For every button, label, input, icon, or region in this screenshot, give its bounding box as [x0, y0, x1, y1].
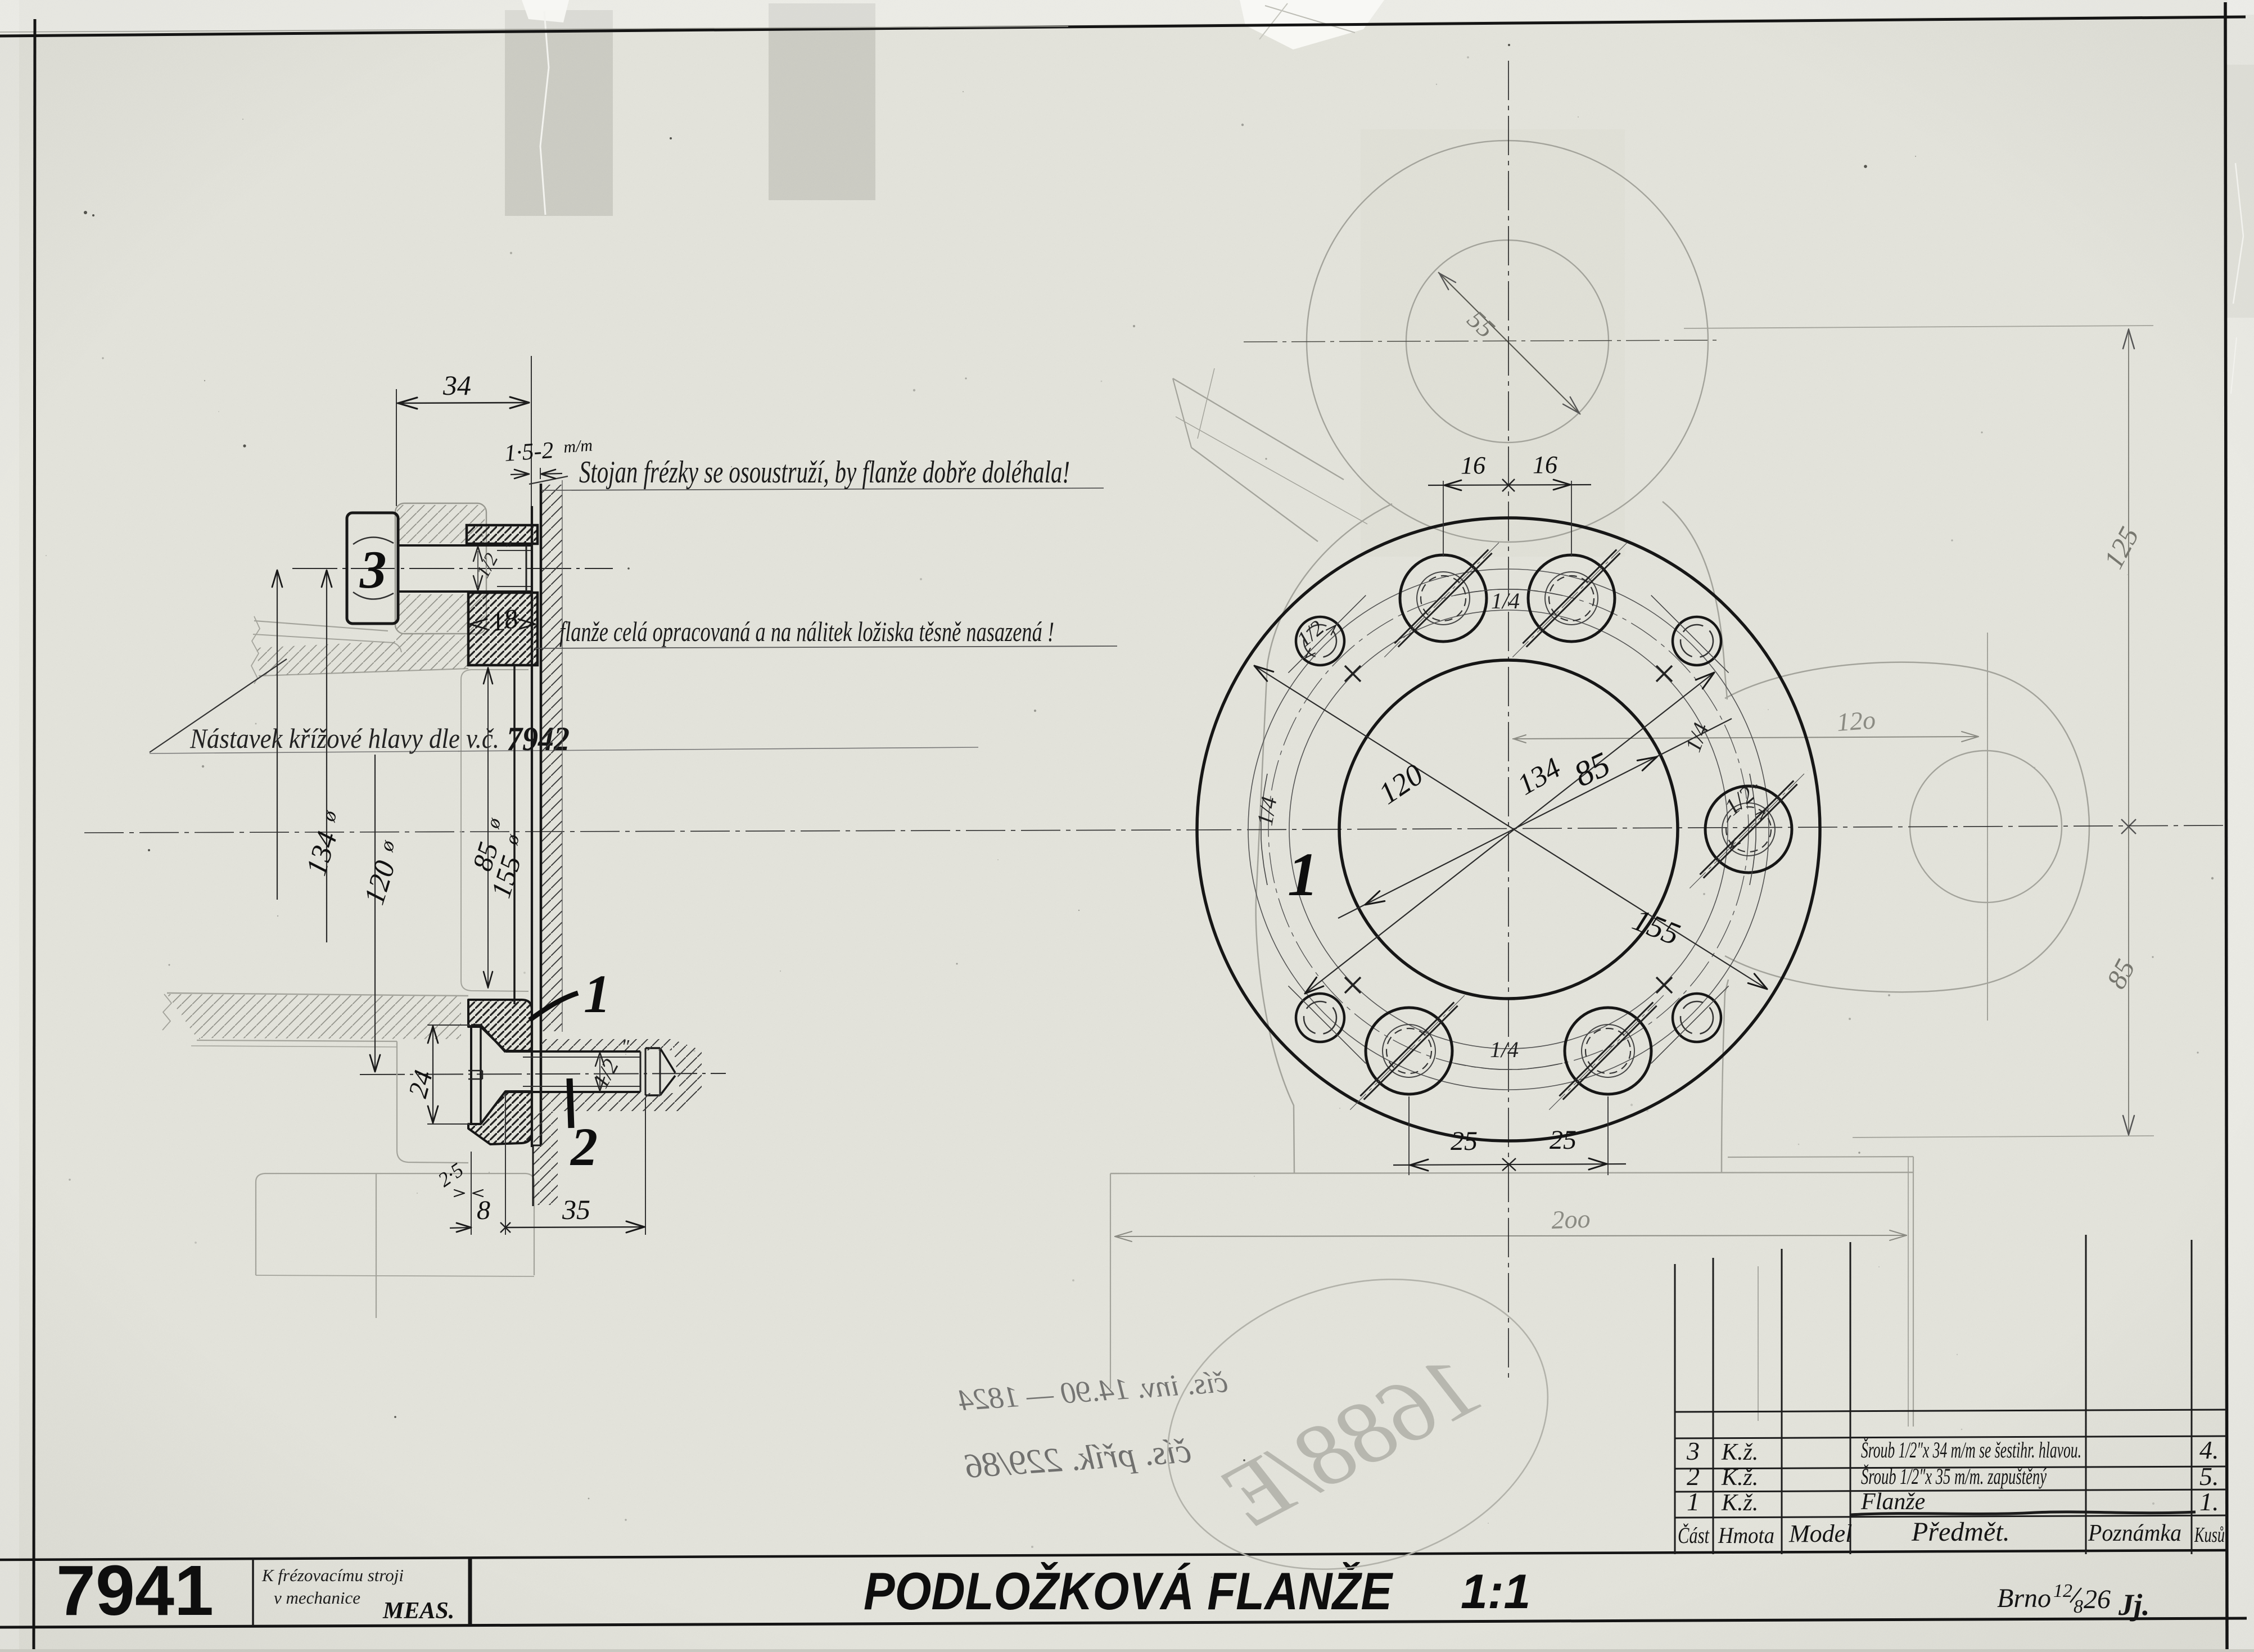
svg-text:K.ž.: K.ž.: [1721, 1439, 1758, 1465]
svg-text:m/m: m/m: [563, 436, 593, 457]
svg-text:2: 2: [570, 1117, 598, 1177]
svg-text:1/4: 1/4: [1491, 588, 1520, 613]
svg-text:25: 25: [1451, 1126, 1478, 1156]
svg-text:Flanže: Flanže: [1860, 1489, 1925, 1515]
svg-text:″: ″: [504, 539, 512, 558]
svg-text:18: 18: [489, 603, 520, 638]
svg-text:1·5-2: 1·5-2: [503, 437, 554, 467]
svg-text:1: 1: [584, 964, 611, 1024]
svg-text:4.: 4.: [2199, 1436, 2219, 1464]
svg-text:MEAS.: MEAS.: [382, 1598, 454, 1624]
svg-text:Část: Část: [1678, 1523, 1710, 1548]
svg-text:Předmět.: Předmět.: [1911, 1517, 2010, 1547]
svg-text:5.: 5.: [2199, 1462, 2219, 1491]
svg-text:Model: Model: [1788, 1520, 1852, 1547]
svg-text:K.ž.: K.ž.: [1721, 1465, 1758, 1491]
svg-text:7941: 7941: [56, 1551, 214, 1630]
svg-text:2: 2: [1687, 1462, 1700, 1491]
svg-text:12o: 12o: [1836, 705, 1876, 737]
svg-text:8: 8: [2074, 1596, 2083, 1617]
svg-text:Poznámka: Poznámka: [2088, 1520, 2181, 1546]
svg-text:1: 1: [1288, 840, 1318, 909]
svg-text:16: 16: [1533, 451, 1557, 479]
svg-text:Jj.: Jj.: [2118, 1588, 2150, 1622]
svg-text:Nástavek křížové hlavy dle v.č: Nástavek křížové hlavy dle v.č.: [189, 723, 499, 754]
svg-text:1: 1: [1687, 1487, 1700, 1516]
svg-text:1/4: 1/4: [1490, 1037, 1519, 1062]
svg-text:Hmota: Hmota: [1718, 1523, 1774, 1548]
svg-text:v mechanice: v mechanice: [274, 1588, 360, 1608]
svg-text:2oo: 2oo: [1551, 1204, 1591, 1234]
svg-text:1/4: 1/4: [1252, 795, 1282, 827]
svg-text:flanže celá opracovaná a na ná: flanže celá opracovaná a na nálitek loži…: [559, 616, 1054, 647]
svg-text:K.ž.: K.ž.: [1721, 1490, 1758, 1516]
svg-text:Šroub 1/2″x 35 m/m. zapuštěný: Šroub 1/2″x 35 m/m. zapuštěný: [1861, 1464, 2047, 1489]
svg-text:Šroub 1/2″x 34 m/m se šestihr.: Šroub 1/2″x 34 m/m se šestihr. hlavou.: [1861, 1437, 2081, 1463]
svg-text:K frézovacímu stroji: K frézovacímu stroji: [261, 1565, 404, 1585]
svg-text:″: ″: [621, 1036, 630, 1057]
svg-text:1:1: 1:1: [1461, 1565, 1530, 1619]
svg-text:Stojan frézky se osoustruží, b: Stojan frézky se osoustruží, by flanže d…: [579, 455, 1070, 490]
svg-text:34: 34: [442, 369, 471, 401]
svg-text:35: 35: [562, 1194, 590, 1225]
svg-text:Brno: Brno: [1997, 1583, 2051, 1613]
svg-text:1.: 1.: [2199, 1487, 2219, 1516]
svg-text:Kusů: Kusů: [2194, 1523, 2225, 1547]
svg-text:16: 16: [1461, 452, 1485, 479]
svg-text:3: 3: [1686, 1437, 1700, 1465]
svg-text:12: 12: [2053, 1581, 2072, 1601]
svg-text:3: 3: [359, 540, 387, 599]
svg-text:25: 25: [1550, 1125, 1577, 1155]
svg-text:8: 8: [477, 1195, 490, 1225]
svg-text:26: 26: [2084, 1585, 2111, 1614]
svg-text:PODLOŽKOVÁ FLANŽE: PODLOŽKOVÁ FLANŽE: [864, 1561, 1394, 1621]
svg-text:″: ″: [1750, 781, 1758, 800]
